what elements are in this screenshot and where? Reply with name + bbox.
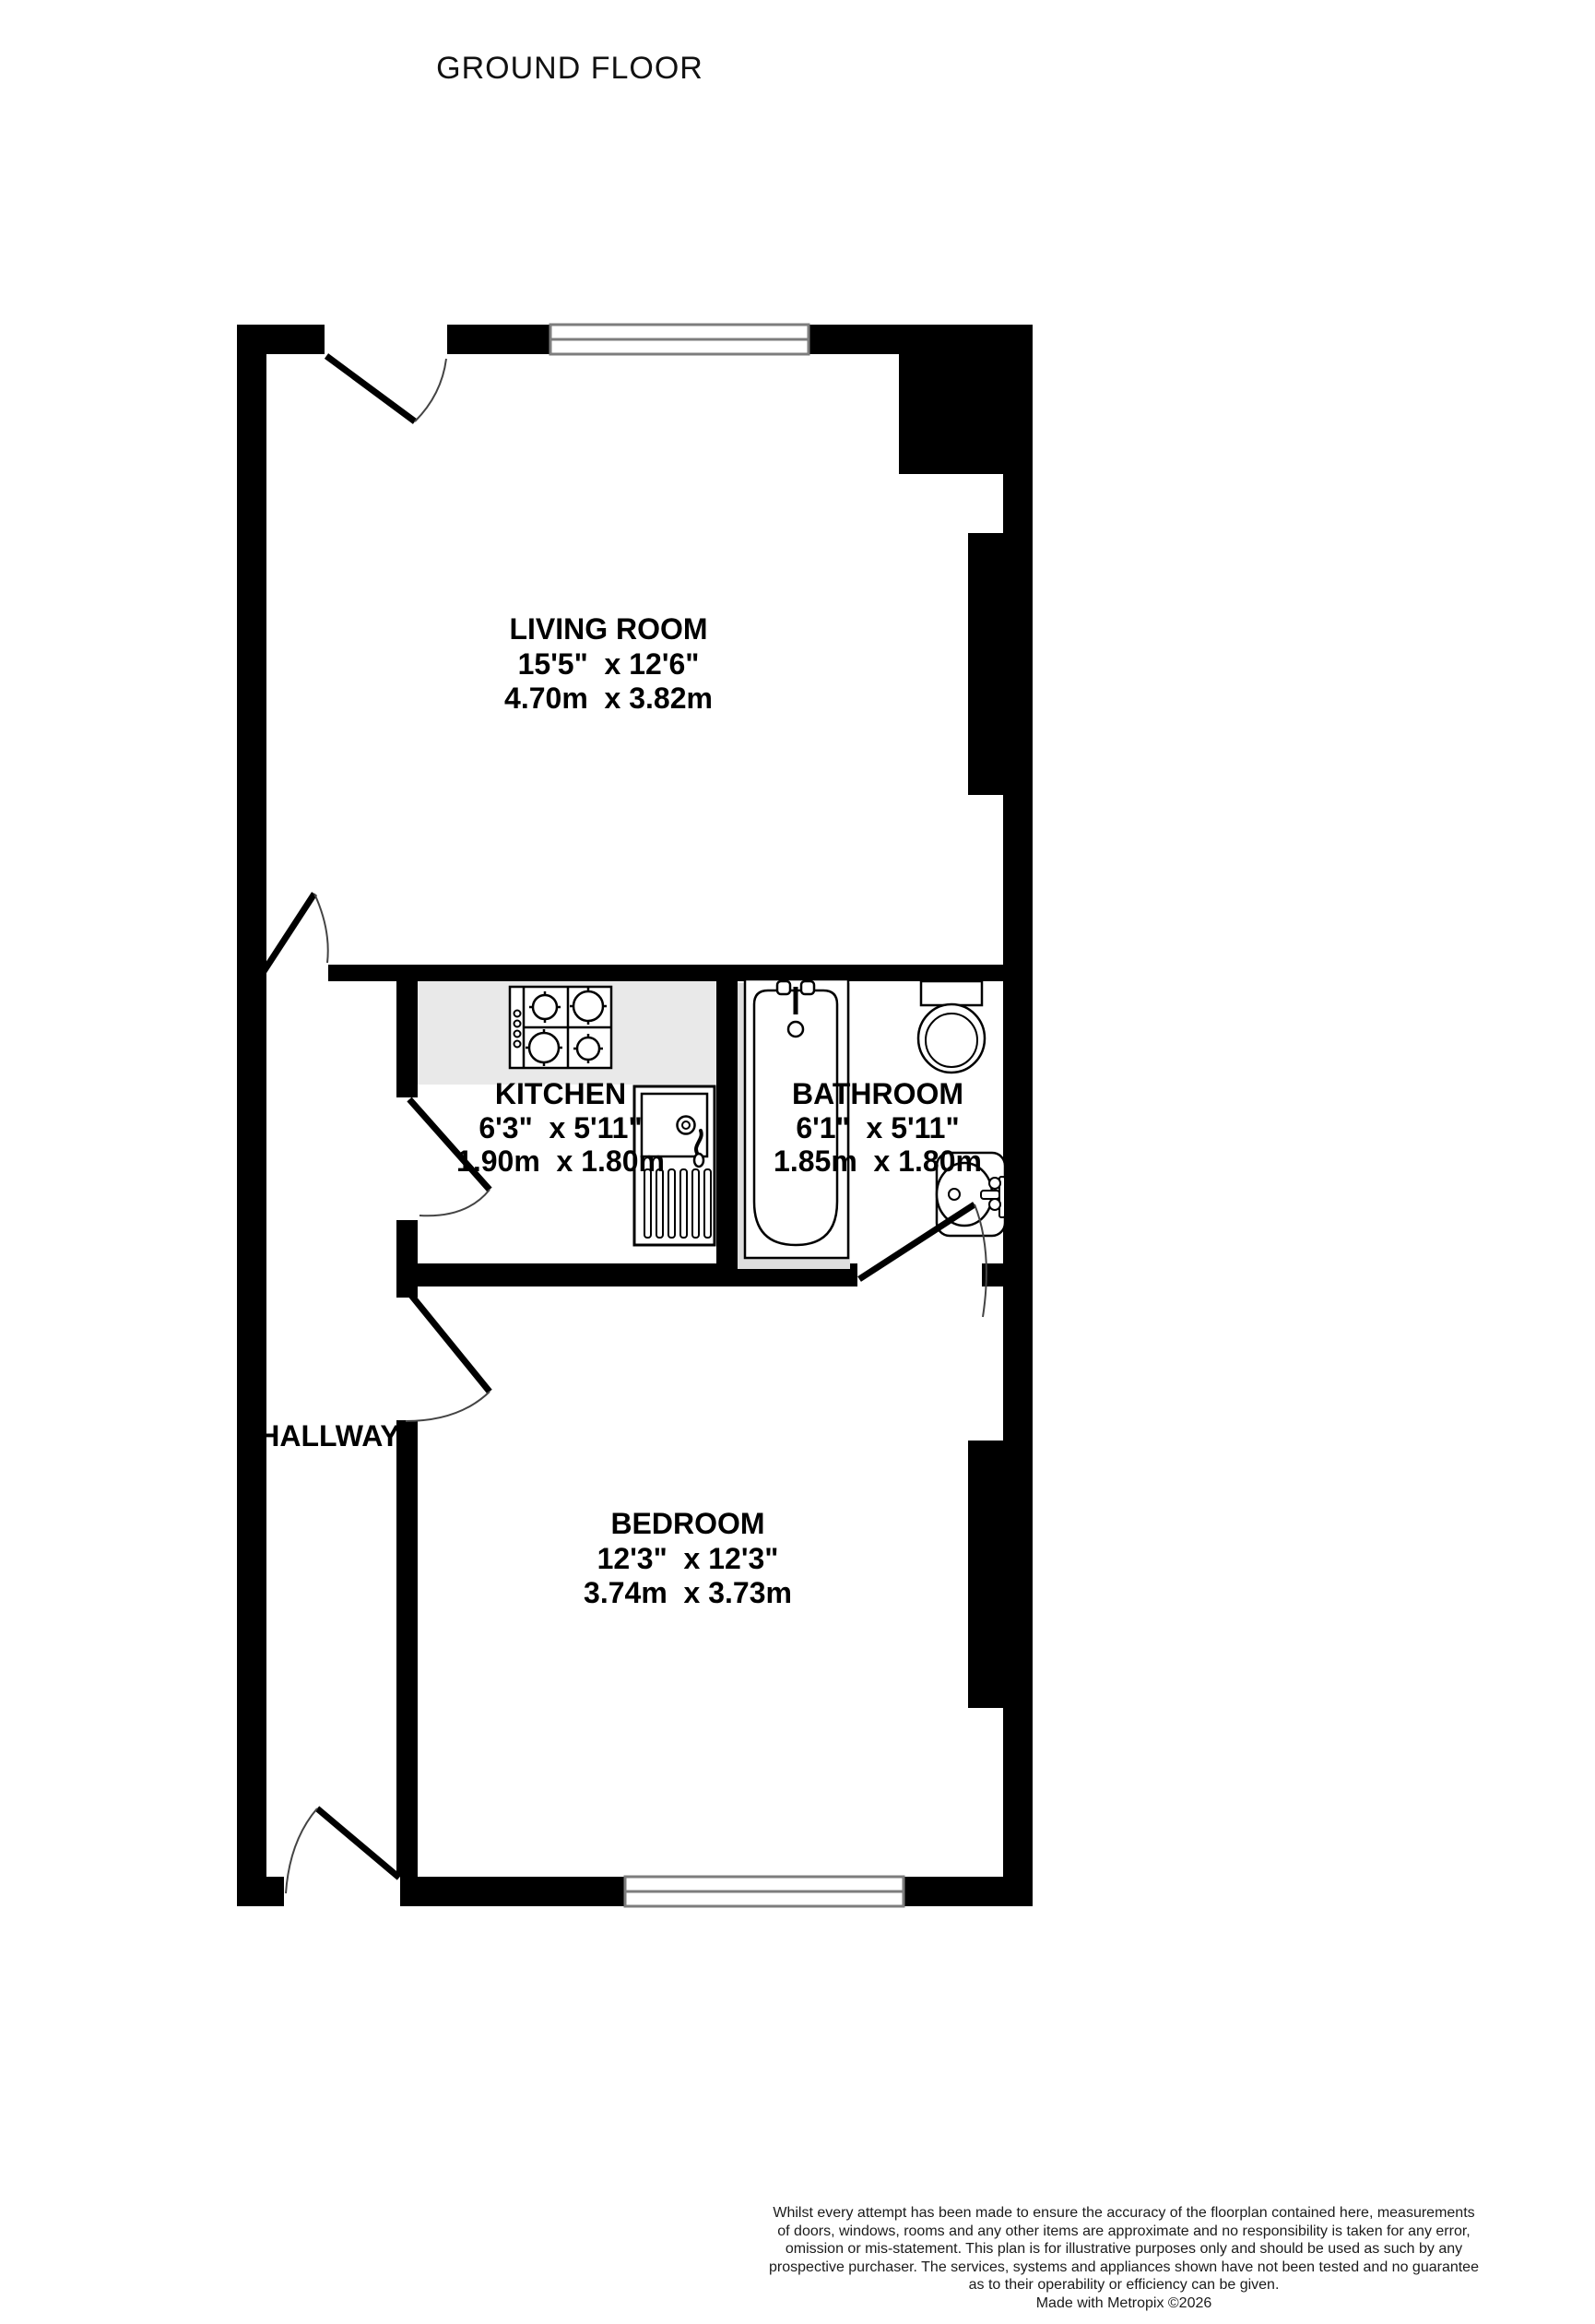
wall-bottom-left xyxy=(237,1877,284,1906)
wall-top-right xyxy=(809,325,1033,354)
disclaimer-line: as to their operability or efficiency ca… xyxy=(733,2276,1515,2294)
wall-pier-bedroom xyxy=(968,1441,1003,1708)
wall-living-room-bottom xyxy=(328,965,1003,981)
kitchen-metric: 1.90m x 1.80m xyxy=(456,1144,665,1178)
disclaimer-line: prospective purchaser. The services, sys… xyxy=(733,2259,1515,2277)
bathroom-metric: 1.85m x 1.80m xyxy=(774,1144,982,1178)
door-hallway-to-bedroom xyxy=(406,1293,490,1421)
wall-right xyxy=(1003,325,1033,1906)
disclaimer-line: omission or mis-statement. This plan is … xyxy=(733,2240,1515,2259)
kitchen-name: KITCHEN xyxy=(495,1077,626,1110)
label-living-room: LIVING ROOM 15'5" x 12'6" 4.70m x 3.82m xyxy=(504,612,713,715)
floorplan-drawing: LIVING ROOM 15'5" x 12'6" 4.70m x 3.82m … xyxy=(0,0,1595,2324)
window-living-room-top xyxy=(550,325,809,354)
toilet-icon xyxy=(918,981,985,1073)
living-room-metric: 4.70m x 3.82m xyxy=(504,682,713,715)
bedroom-metric: 3.74m x 3.73m xyxy=(584,1576,792,1609)
bathroom-name: BATHROOM xyxy=(792,1077,963,1110)
wall-pier-living-room xyxy=(968,533,1003,795)
kitchen-imperial: 6'3" x 5'11" xyxy=(478,1111,642,1144)
wall-top-mid xyxy=(447,325,550,354)
door-hallway-to-living-room xyxy=(261,894,328,976)
hallway-name: HALLWAY xyxy=(258,1419,400,1452)
wall-left xyxy=(237,325,266,1906)
wall-kitchen-bathroom-divider xyxy=(716,981,738,1263)
living-room-name: LIVING ROOM xyxy=(509,612,707,646)
bedroom-imperial: 12'3" x 12'3" xyxy=(597,1542,779,1575)
living-room-imperial: 15'5" x 12'6" xyxy=(518,647,700,681)
disclaimer: Whilst every attempt has been made to en… xyxy=(733,2204,1515,2313)
label-bedroom: BEDROOM 12'3" x 12'3" 3.74m x 3.73m xyxy=(584,1507,792,1609)
wall-bathroom-bottom-right xyxy=(982,1263,1003,1286)
wall-kitchen-left-lower xyxy=(396,1220,418,1263)
door-living-room-top xyxy=(326,356,446,421)
label-bathroom: BATHROOM 6'1" x 5'11" 1.85m x 1.80m xyxy=(774,1077,982,1178)
wall-kitchen-left-upper xyxy=(396,981,418,1097)
wall-bottom-mid xyxy=(400,1877,625,1906)
hob-icon xyxy=(510,987,611,1068)
disclaimer-line: Whilst every attempt has been made to en… xyxy=(733,2204,1515,2223)
wall-bedroom-left xyxy=(396,1420,418,1877)
bedroom-name: BEDROOM xyxy=(610,1507,764,1540)
room-labels: LIVING ROOM 15'5" x 12'6" 4.70m x 3.82m … xyxy=(258,612,982,1609)
wall-bottom-right xyxy=(904,1877,1033,1906)
wall-kitchen-bottom xyxy=(396,1263,738,1286)
door-front-entrance xyxy=(286,1808,399,1893)
disclaimer-credit: Made with Metropix ©2026 xyxy=(733,2294,1515,2313)
floorplan-page: GROUND FLOOR xyxy=(0,0,1595,2324)
chimney-block-top-right xyxy=(899,354,1003,474)
disclaimer-line: of doors, windows, rooms and any other i… xyxy=(733,2223,1515,2241)
window-bedroom-bottom xyxy=(625,1877,904,1906)
bathroom-imperial: 6'1" x 5'11" xyxy=(796,1111,959,1144)
